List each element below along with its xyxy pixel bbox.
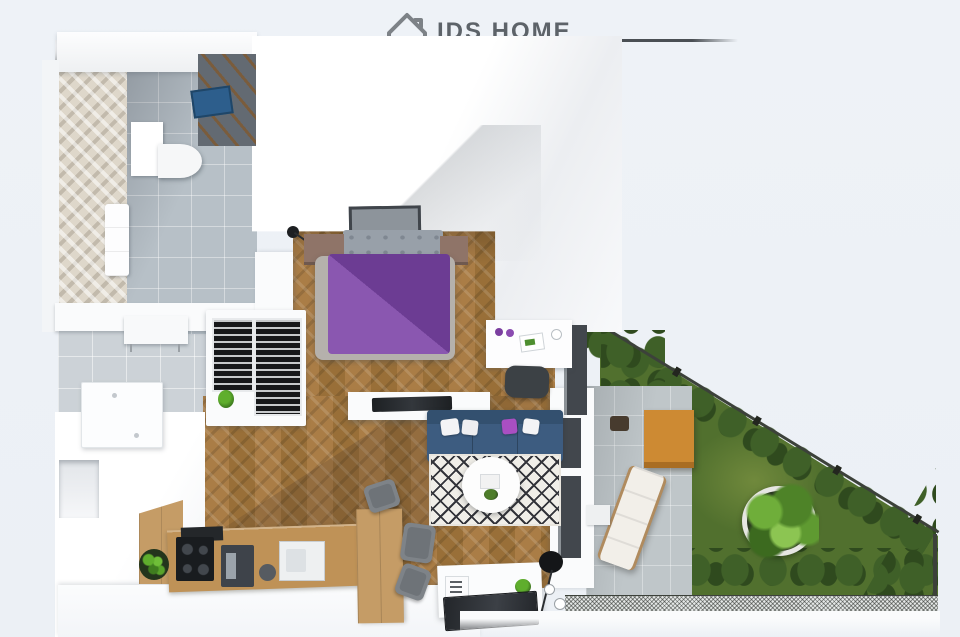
throw-pillow — [440, 418, 460, 436]
wardrobe-plant — [218, 390, 234, 408]
floor-lamp-bulb — [544, 584, 555, 595]
kitchen-plant — [139, 549, 169, 580]
coffee-table-tray — [480, 474, 500, 489]
throw-pillow — [522, 418, 540, 435]
bathroom-vanity — [105, 204, 129, 276]
throw-pillow-magenta — [501, 418, 517, 434]
shower-tray — [190, 85, 234, 118]
purple-duvet — [328, 254, 450, 354]
coffee-machine — [221, 545, 254, 587]
desk-cup — [506, 329, 514, 337]
hall-storage-cabinet — [81, 382, 163, 448]
throw-pillow — [461, 419, 478, 436]
desk-cup — [495, 328, 503, 336]
coffee-table-plant — [484, 489, 498, 500]
kitchen-sink — [279, 541, 325, 581]
wardrobe-rack-right — [254, 318, 302, 416]
patio-grill — [610, 416, 629, 431]
floor-plan-page: IDS HOME NIERUCHOMOŚCI — [0, 0, 960, 637]
desk-lamp — [551, 329, 562, 340]
desk-notebook — [519, 332, 545, 352]
living-window-2 — [558, 476, 581, 558]
tall-cabinet — [356, 509, 404, 624]
cooktop — [176, 537, 214, 581]
floor-lamp-bulb — [554, 598, 566, 610]
grinder — [259, 564, 276, 581]
left-outer-wall — [42, 60, 59, 332]
desk-chair — [504, 365, 549, 399]
wardrobe-rack-left — [212, 318, 254, 392]
round-planter-tree — [742, 486, 816, 556]
console-table — [124, 316, 188, 344]
toilet — [158, 144, 202, 178]
terrace-threshold — [586, 505, 610, 525]
bottom-white-fade — [460, 611, 940, 637]
wall-lamp — [287, 226, 299, 238]
dining-chair — [400, 522, 437, 564]
patio-table — [644, 410, 694, 468]
bathroom-chevron-tile-wall — [57, 70, 127, 316]
